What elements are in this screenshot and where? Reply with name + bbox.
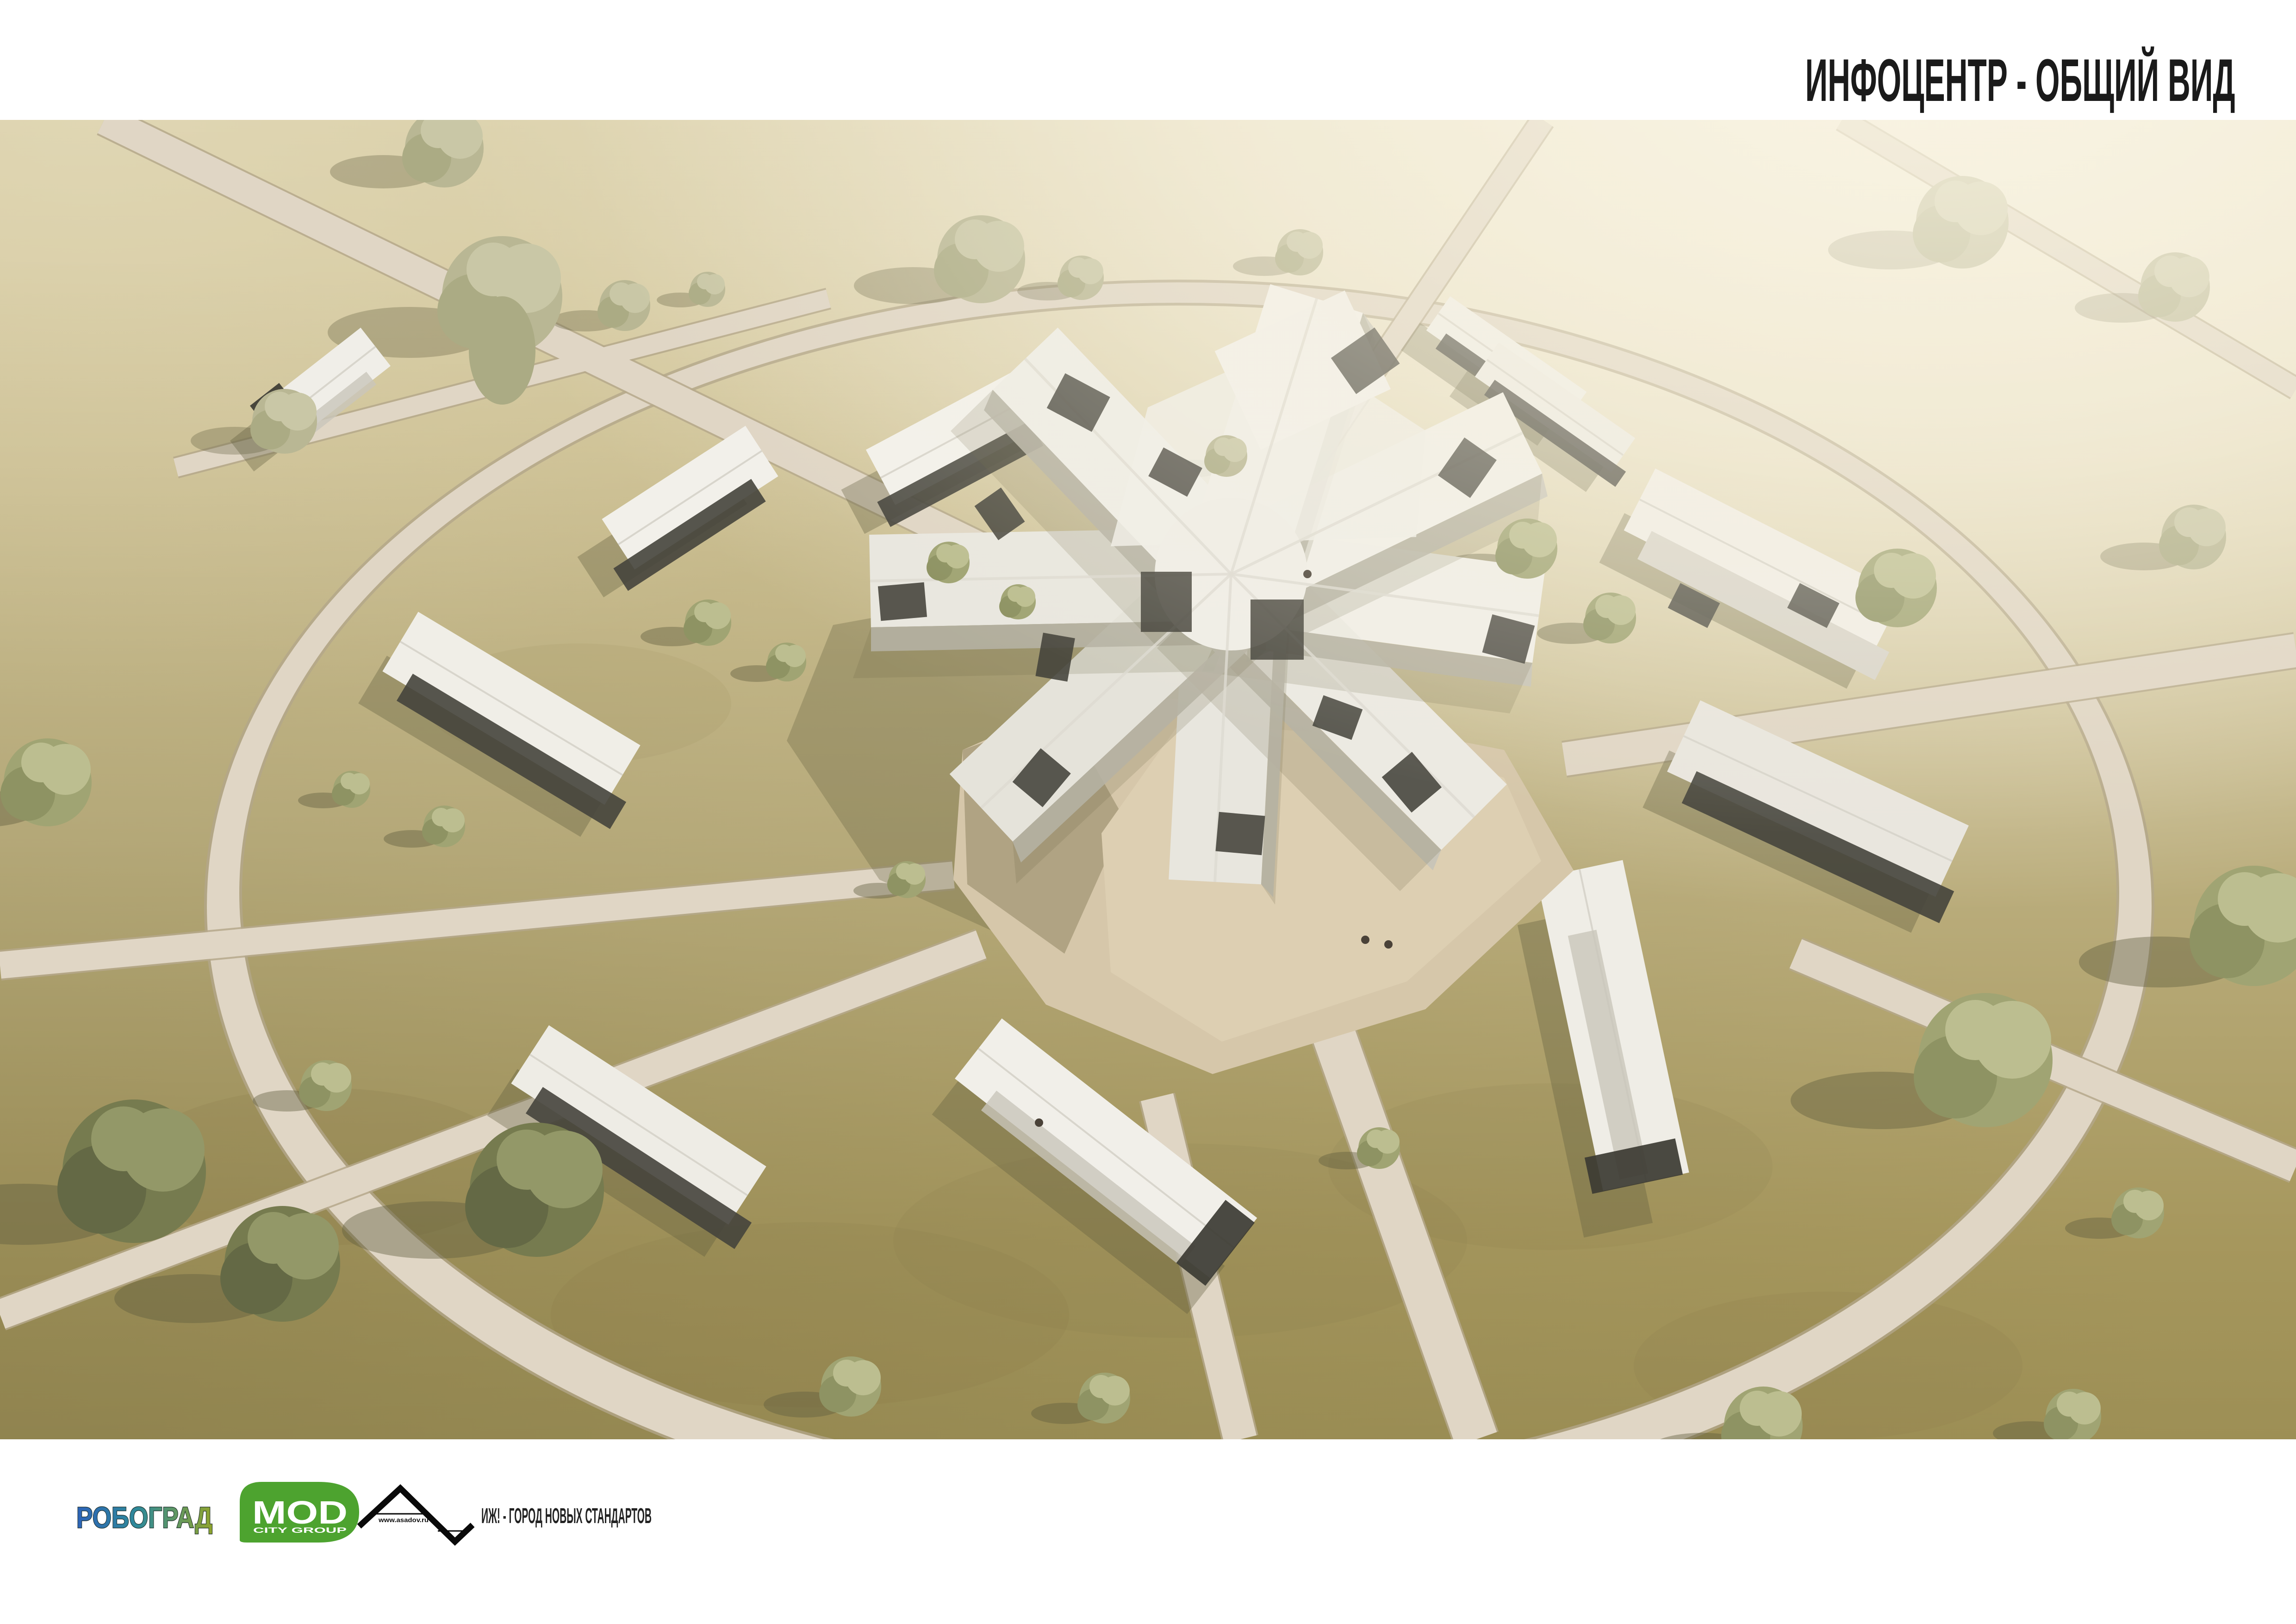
svg-text:ИЖ! - ГОРОД НОВЫХ СТАНДАРТОВ: ИЖ! - ГОРОД НОВЫХ СТАНДАРТОВ: [481, 1504, 652, 1528]
svg-text:www.asadov.ru: www.asadov.ru: [378, 1516, 429, 1524]
svg-text:РОБОГРАД: РОБОГРАД: [76, 1501, 212, 1534]
svg-text:MOD: MOD: [252, 1494, 348, 1530]
svg-text:CITY GROUP: CITY GROUP: [253, 1526, 347, 1535]
